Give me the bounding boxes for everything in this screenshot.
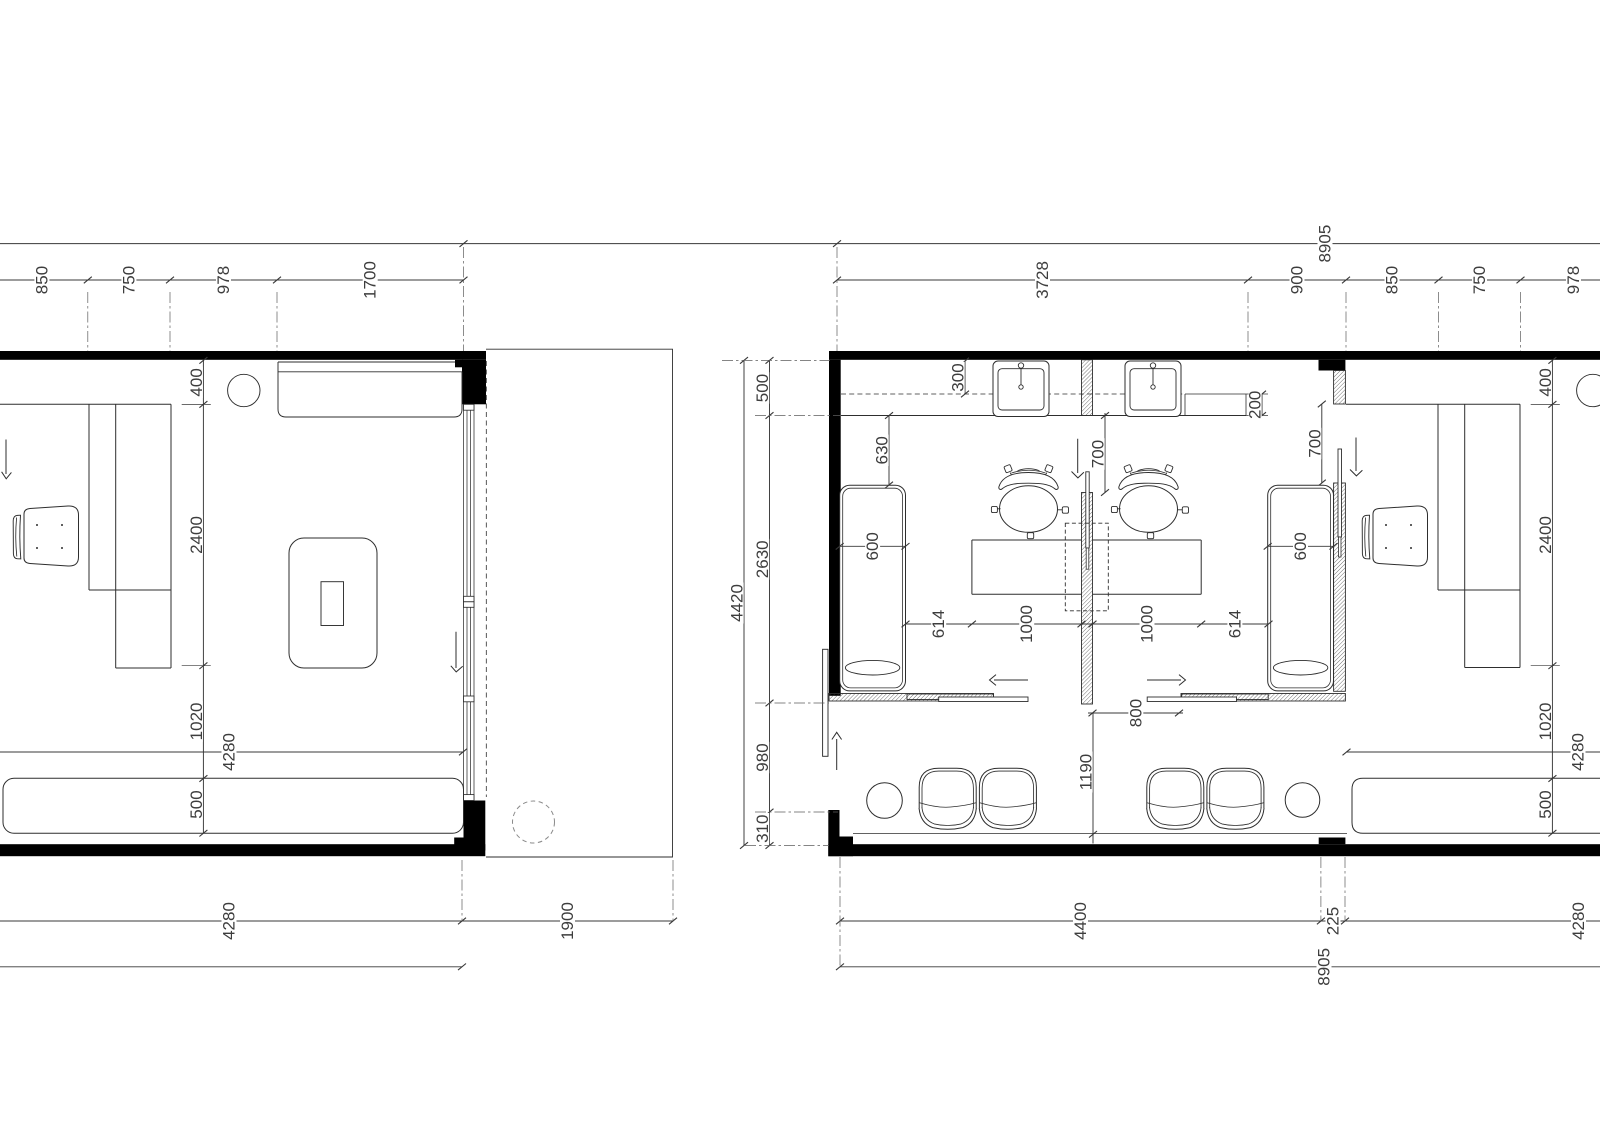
svg-text:850: 850 bbox=[32, 266, 51, 294]
svg-text:4280: 4280 bbox=[1569, 902, 1588, 940]
svg-text:200: 200 bbox=[1246, 391, 1265, 419]
svg-text:630: 630 bbox=[873, 436, 892, 464]
svg-text:500: 500 bbox=[187, 790, 206, 818]
svg-text:750: 750 bbox=[119, 266, 138, 294]
svg-text:500: 500 bbox=[1536, 790, 1555, 818]
svg-text:978: 978 bbox=[214, 266, 233, 294]
svg-text:600: 600 bbox=[1291, 532, 1310, 560]
svg-text:4280: 4280 bbox=[220, 733, 239, 771]
svg-text:850: 850 bbox=[1383, 266, 1402, 294]
svg-text:1000: 1000 bbox=[1017, 605, 1036, 643]
svg-text:1700: 1700 bbox=[361, 261, 380, 299]
svg-text:1190: 1190 bbox=[1077, 754, 1096, 791]
svg-text:8905: 8905 bbox=[1315, 948, 1334, 986]
svg-text:300: 300 bbox=[949, 363, 968, 391]
svg-text:4280: 4280 bbox=[220, 902, 239, 940]
svg-text:900: 900 bbox=[1288, 266, 1307, 294]
svg-text:614: 614 bbox=[929, 610, 948, 638]
svg-text:1020: 1020 bbox=[187, 702, 206, 740]
svg-text:4420: 4420 bbox=[728, 584, 747, 622]
svg-text:978: 978 bbox=[1564, 266, 1583, 294]
svg-text:8905: 8905 bbox=[1316, 225, 1335, 263]
svg-text:600: 600 bbox=[863, 532, 882, 560]
svg-text:3728: 3728 bbox=[1033, 261, 1052, 299]
svg-text:1900: 1900 bbox=[558, 902, 577, 940]
svg-text:4400: 4400 bbox=[1071, 902, 1090, 940]
svg-text:700: 700 bbox=[1306, 429, 1325, 457]
svg-text:1000: 1000 bbox=[1138, 605, 1157, 643]
svg-text:2400: 2400 bbox=[1536, 516, 1555, 554]
svg-text:980: 980 bbox=[753, 743, 772, 771]
svg-text:614: 614 bbox=[1225, 610, 1244, 638]
svg-text:225: 225 bbox=[1324, 907, 1343, 935]
svg-text:400: 400 bbox=[187, 368, 206, 396]
svg-text:4280: 4280 bbox=[1569, 733, 1588, 771]
svg-text:400: 400 bbox=[1536, 368, 1555, 396]
svg-text:700: 700 bbox=[1089, 440, 1108, 468]
svg-text:310: 310 bbox=[753, 815, 772, 843]
svg-text:2400: 2400 bbox=[187, 516, 206, 554]
svg-text:750: 750 bbox=[1470, 266, 1489, 294]
svg-text:1020: 1020 bbox=[1536, 702, 1555, 740]
svg-text:800: 800 bbox=[1126, 699, 1145, 727]
svg-text:2630: 2630 bbox=[753, 540, 772, 578]
svg-text:500: 500 bbox=[753, 374, 772, 402]
